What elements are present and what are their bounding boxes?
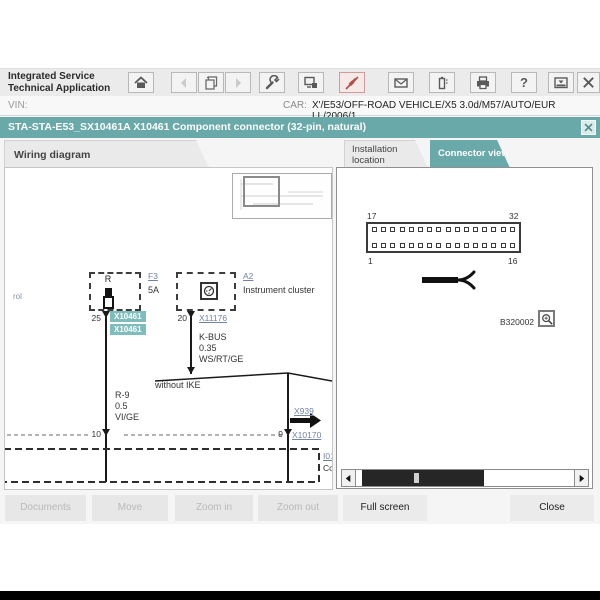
battery-button[interactable] bbox=[429, 72, 455, 93]
exit-button[interactable] bbox=[577, 72, 600, 93]
connector-view-panel[interactable]: 17 32 1 16 B320002 bbox=[336, 167, 593, 489]
left-pin-number: 10 bbox=[81, 429, 101, 439]
pin-square bbox=[510, 243, 515, 248]
connector-orientation-symbol bbox=[422, 268, 477, 292]
workshop-system-icon bbox=[303, 75, 319, 91]
pin-square bbox=[418, 243, 423, 248]
fuse-component-box: R bbox=[89, 272, 141, 311]
connection-button[interactable] bbox=[339, 72, 365, 93]
pin-square bbox=[491, 243, 496, 248]
scroll-right-button[interactable] bbox=[574, 469, 589, 487]
close-icon bbox=[583, 122, 594, 133]
fuse-symbol-cap bbox=[105, 288, 112, 296]
module-name: Co bbox=[323, 463, 333, 473]
magnifier-icon bbox=[541, 313, 553, 325]
scrollbar-thumb[interactable] bbox=[362, 470, 484, 486]
pin-square bbox=[446, 227, 451, 232]
scrollbar-track[interactable] bbox=[356, 469, 574, 487]
mail-icon bbox=[393, 75, 409, 91]
fuse-symbol-body bbox=[103, 296, 114, 309]
pin-square bbox=[427, 243, 432, 248]
left-wire-name: R-9 bbox=[115, 390, 130, 400]
operations-button[interactable] bbox=[259, 72, 285, 93]
workshop-system-button[interactable] bbox=[298, 72, 324, 93]
pin-square bbox=[418, 227, 423, 232]
cluster-component-box bbox=[176, 272, 236, 311]
pin-square bbox=[390, 227, 395, 232]
cluster-connector-link[interactable]: X11176 bbox=[199, 313, 227, 323]
printer-icon bbox=[475, 75, 491, 91]
pin-square bbox=[510, 227, 515, 232]
figure-zoom-button[interactable] bbox=[538, 310, 555, 327]
app-title: Integrated Service Technical Application bbox=[8, 71, 110, 95]
pin-square bbox=[400, 227, 405, 232]
app-title-line1: Integrated Service bbox=[8, 71, 110, 83]
wire-color-label: WS/RT/GE bbox=[199, 354, 243, 364]
car-label: CAR: bbox=[283, 100, 307, 111]
back-button[interactable] bbox=[171, 72, 197, 93]
connector-32pin-drawing bbox=[366, 222, 521, 253]
minimize-tray-icon bbox=[553, 75, 569, 91]
minimize-tray-button[interactable] bbox=[548, 72, 574, 93]
ista-window: Integrated Service Technical Application bbox=[0, 0, 600, 600]
scroll-right-icon bbox=[577, 474, 586, 483]
battery-icon bbox=[434, 75, 450, 91]
pin-square bbox=[455, 227, 460, 232]
scroll-left-icon bbox=[344, 474, 353, 483]
diagram-minimap[interactable] bbox=[232, 173, 332, 219]
pin-label-16: 16 bbox=[508, 256, 517, 266]
pin-square bbox=[409, 227, 414, 232]
pin-square bbox=[400, 243, 405, 248]
vehicle-info-bar: VIN: CAR: X'/E53/OFF-ROAD VEHICLE/X5 3.0… bbox=[0, 96, 600, 116]
right-pin-number: 9 bbox=[267, 429, 283, 439]
pin-label-1: 1 bbox=[368, 256, 373, 266]
tab-wiring-diagram[interactable]: Wiring diagram bbox=[4, 140, 209, 168]
left-wire-color: VI/GE bbox=[115, 412, 139, 422]
help-button[interactable]: ? bbox=[511, 72, 537, 93]
pin-square bbox=[491, 227, 496, 232]
right-connector-link[interactable]: X10170 bbox=[292, 430, 321, 440]
pin-square bbox=[436, 243, 441, 248]
app-header: Integrated Service Technical Application bbox=[0, 68, 600, 96]
fuse-pin-number: 25 bbox=[75, 313, 101, 323]
zoom-out-button[interactable]: Zoom out bbox=[258, 495, 338, 521]
cluster-name: Instrument cluster bbox=[243, 285, 315, 295]
clipped-edge-text: rol bbox=[13, 292, 22, 301]
pin-square bbox=[473, 227, 478, 232]
home-icon bbox=[133, 75, 149, 91]
document-close-button[interactable] bbox=[581, 120, 596, 135]
pin-square bbox=[464, 243, 469, 248]
full-screen-button[interactable]: Full screen bbox=[343, 495, 427, 521]
branch-note: without IKE bbox=[155, 380, 201, 390]
connection-plug-icon bbox=[344, 75, 360, 91]
pin-square bbox=[455, 243, 460, 248]
close-button[interactable]: Close bbox=[510, 495, 594, 521]
pin-square bbox=[409, 243, 414, 248]
pin-square bbox=[427, 227, 432, 232]
back-arrow-icon bbox=[176, 75, 192, 91]
pin-row-bottom bbox=[372, 243, 515, 248]
pin-square bbox=[473, 243, 478, 248]
copy-pages-icon bbox=[203, 75, 219, 91]
connector-tag-x10461-b[interactable]: X10461 bbox=[110, 324, 146, 335]
instrument-cluster-icon bbox=[200, 282, 218, 300]
bottom-black-bar bbox=[0, 591, 600, 600]
move-button[interactable]: Move bbox=[92, 495, 168, 521]
bridge-ref-link[interactable]: X939 bbox=[294, 406, 314, 416]
scroll-left-button[interactable] bbox=[341, 469, 356, 487]
fuse-rating: 5A bbox=[148, 285, 159, 295]
pin-square bbox=[464, 227, 469, 232]
document-title: STA-STA-E53_SX10461A X10461 Component co… bbox=[8, 121, 366, 133]
pin-square bbox=[372, 243, 377, 248]
pin-square bbox=[501, 243, 506, 248]
scrollbar-grip bbox=[414, 473, 419, 483]
pin-square bbox=[436, 227, 441, 232]
figure-id: B320002 bbox=[500, 317, 534, 327]
close-icon bbox=[581, 75, 596, 90]
app-title-line2: Technical Application bbox=[8, 83, 110, 95]
pin-label-32: 32 bbox=[509, 211, 518, 221]
document-titlebar: STA-STA-E53_SX10461A X10461 Component co… bbox=[0, 117, 600, 138]
pin-square bbox=[482, 227, 487, 232]
forward-arrow-icon bbox=[230, 75, 246, 91]
pin-square bbox=[482, 243, 487, 248]
wiring-diagram-panel[interactable]: rol R F3 5A 25 X10461 X10461 A2 Instrume… bbox=[4, 167, 333, 490]
pin-square bbox=[381, 243, 386, 248]
cluster-ref-link[interactable]: A2 bbox=[243, 271, 253, 281]
home-button[interactable] bbox=[128, 72, 154, 93]
documents-button[interactable]: Documents bbox=[5, 495, 86, 521]
left-wire-gauge: 0.5 bbox=[115, 401, 128, 411]
pin-square bbox=[446, 243, 451, 248]
wrench-icon bbox=[264, 75, 280, 91]
wire-bus-label: K-BUS bbox=[199, 332, 227, 342]
pin-label-17: 17 bbox=[367, 211, 376, 221]
forward-button[interactable] bbox=[225, 72, 251, 93]
pin-square bbox=[381, 227, 386, 232]
fuse-ref-link[interactable]: F3 bbox=[148, 271, 158, 281]
wire-gauge-label: 0.35 bbox=[199, 343, 217, 353]
tab-connector-view[interactable]: Connector view bbox=[430, 140, 510, 168]
print-button[interactable] bbox=[470, 72, 496, 93]
pin-square bbox=[501, 227, 506, 232]
copy-pages-button[interactable] bbox=[198, 72, 224, 93]
tab-installation-location[interactable]: Installation location bbox=[344, 140, 428, 168]
zoom-in-button[interactable]: Zoom in bbox=[175, 495, 253, 521]
connector-tag-x10461-a[interactable]: X10461 bbox=[110, 311, 146, 322]
module-ref-link[interactable]: I01 bbox=[323, 451, 333, 461]
minimap-viewport[interactable] bbox=[243, 176, 280, 207]
pin-square bbox=[390, 243, 395, 248]
cluster-pin-number: 20 bbox=[163, 313, 187, 323]
fuse-box-label: R bbox=[99, 274, 117, 284]
mail-button[interactable] bbox=[388, 72, 414, 93]
horizontal-scrollbar bbox=[341, 469, 589, 487]
pin-row-top bbox=[372, 227, 515, 232]
pin-square bbox=[372, 227, 377, 232]
vin-label: VIN: bbox=[8, 100, 27, 111]
help-icon: ? bbox=[520, 76, 528, 89]
